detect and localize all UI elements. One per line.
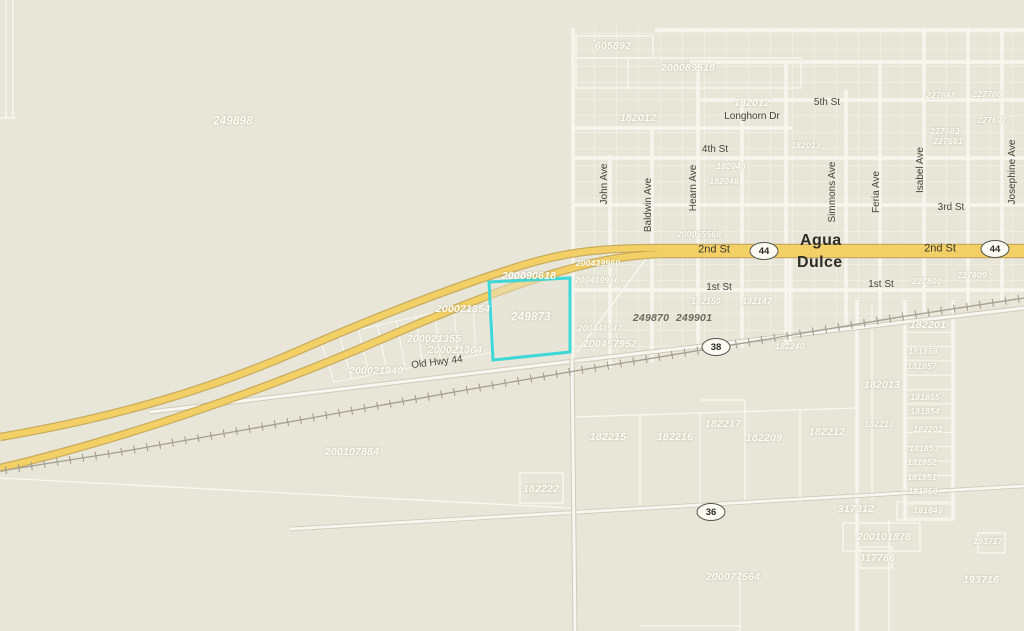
street-label: 4th St [702,145,728,155]
parcel-label: 182240 [775,342,805,351]
parcel-label: 200439960 [576,259,620,268]
parcel-label: 200457952 [583,339,637,350]
parcel-label: 200439966 [575,276,619,285]
parcel-label: 317312 [838,504,874,515]
parcel-label: 200021355 [407,334,461,345]
street-label: Hearn Ave [689,165,699,212]
parcel-label: 182216 [657,432,693,443]
route-shield-44: 44 [750,242,779,260]
street-label: 2nd St [924,244,956,255]
parcel-label: 200107884 [325,447,379,458]
town-name-line2: Dulce [797,255,843,271]
parcel-label: 193716 [963,575,999,586]
parcel-label: 181858 [908,347,938,356]
parcel-label: 182202 [913,425,943,434]
parcel-label: 227681 [933,137,963,146]
parcel-label: 200021340 [349,366,403,377]
parcel-label: 182012 [734,98,770,109]
parcel-label: 182201 [910,320,946,331]
parcel-label: 181849 [913,506,943,515]
parcel-label: 317786 [859,553,895,564]
parcel-label: 200101878 [857,532,911,543]
street-label: Isabel Ave [916,147,926,193]
parcel-label: 182222 [523,484,559,495]
parcel-label: 227706 [972,90,1002,99]
parcel-label: 249898 [213,116,253,128]
street-label: Baldwin Ave [644,178,654,232]
parcel-label: 227800 [912,277,942,286]
parcel-label: 181852 [907,458,937,467]
street-label: John Ave [600,164,610,205]
town-name-line1: Agua [800,233,842,249]
street-label: 5th St [814,98,840,108]
parcel-label: 249870 [633,313,669,324]
parcel-label: 227809 [957,271,987,280]
street-label: 1st St [868,280,894,290]
parcel-label: 200021354 [436,304,490,315]
parcel-label: 181850 [908,487,938,496]
street-label: 3rd St [938,203,965,213]
parcel-label: 182046 [716,162,746,171]
parcel-label: 249901 [676,313,712,324]
parcel-label: 200077564 [706,572,760,583]
parcel-label: 200448947 [578,324,622,333]
map-canvas[interactable]: Agua Dulce 24989860589220008951818201218… [0,0,1024,631]
street-label: Simmons Ave [828,162,838,223]
parcel-label: 182209 [746,433,782,444]
street-label: Feria Ave [872,171,882,213]
parcel-label: 182048 [709,177,739,186]
street-label: 1st St [706,283,732,293]
parcel-label: 182012 [620,113,656,124]
parcel-label: 181853 [909,444,939,453]
parcel-label: 200090618 [502,271,556,282]
parcel-label: 181857 [907,362,937,371]
parcel-label: 182147 [742,297,772,306]
route-shield-36: 36 [697,503,726,521]
street-label: 2nd St [698,245,730,256]
parcel-label: 227682 [930,127,960,136]
parcel-label: 249873 [511,312,551,324]
parcel-label: 181854 [910,407,940,416]
parcel-label: 182210 [864,420,894,429]
route-shield-38: 38 [702,338,731,356]
parcel-label: 182217 [705,419,741,430]
parcel-label: 182212 [809,427,845,438]
parcel-label: 227697 [977,116,1007,125]
parcel-label: 227688 [926,91,956,100]
parcel-label: 605892 [595,41,631,52]
parcel-label: 182150 [691,297,721,306]
street-label: Longhorn Dr [724,112,780,122]
parcel-label: 200089518 [661,63,715,74]
parcel-label: 200055568 [677,230,721,239]
route-shield-44: 44 [981,240,1010,258]
parcel-label: 182013 [864,380,900,391]
parcel-label: 193717 [973,537,1003,546]
parcel-label: 182215 [590,432,626,443]
parcel-label: 181851 [907,473,937,482]
parcel-label: 182013 [791,141,821,150]
parcel-label: 181855 [910,393,940,402]
street-label: Josephine Ave [1008,140,1018,205]
